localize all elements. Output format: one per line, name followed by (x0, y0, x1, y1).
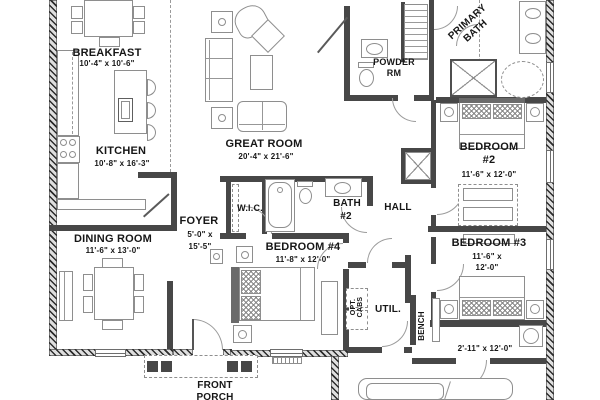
breakfast-table (84, 0, 133, 37)
util-door-arc (367, 238, 392, 263)
breakfast-chair (133, 6, 145, 19)
room-dims-breakfast: 10'-4" x 10'-6" (79, 60, 134, 68)
dining-table (94, 267, 134, 320)
sofa-back-line (209, 40, 210, 100)
room-dims-bedroom3-2: 12'-0" (476, 264, 499, 272)
wall-bed3-hall-upper (431, 237, 436, 264)
wall-pantry-right (171, 172, 177, 231)
breakfast-chair (99, 37, 120, 47)
wall-wic-left (226, 182, 231, 234)
label-bench: BENCH (418, 303, 426, 349)
bed4-dresser (321, 281, 338, 335)
kitchen-counter-lower (57, 163, 79, 199)
front-door-leaf (192, 319, 194, 350)
dining-chair (83, 274, 93, 291)
window-primary-bath (546, 62, 554, 93)
range-burner (69, 151, 76, 158)
primary-shower (450, 59, 497, 97)
pantry-angled-door (143, 193, 170, 217)
range-burner (69, 139, 76, 146)
end-table-lamp (218, 114, 226, 122)
foyer-console-lamp (213, 253, 220, 260)
breakfast-chair (71, 6, 83, 19)
bed4-corner-lamp (241, 251, 249, 259)
bed4-cover-line (300, 268, 301, 320)
dining-chair (134, 274, 144, 291)
bath2-toilet-tank (297, 181, 313, 187)
wall-bed4-top-right (272, 233, 349, 239)
bed4-lamp (238, 330, 247, 339)
bed2-pillow (462, 104, 491, 119)
window-bedroom4 (270, 349, 303, 357)
loveseat-cushion-line (262, 102, 263, 130)
room-label-bedroom2-2: #2 (483, 155, 496, 166)
bed2-cover-line (460, 134, 524, 135)
room-dims-bedroom4: 11'-8" x 12'-0" (276, 256, 331, 264)
room-label-powder-2: RM (387, 69, 401, 78)
linen-closet (405, 152, 431, 180)
powder-toilet-bowl (359, 69, 374, 87)
island-stool (147, 124, 156, 141)
bath2-toilet-bowl (299, 188, 312, 204)
wall-util-top-left (348, 262, 366, 268)
kitchen-counter-bottom (57, 199, 146, 210)
room-dims-foyer-1: 5'-0" x (187, 231, 212, 239)
breakfast-chair (71, 21, 83, 34)
wall-util-bottom-left (348, 347, 382, 353)
opt-cabs-line1: OPT. (350, 287, 357, 327)
wall-bath2-right-upper (367, 176, 373, 206)
bed3-pillow (462, 300, 491, 316)
hall-dims: 2'-11" x 12'-0" (458, 345, 513, 353)
ceiling-break-breakfast (170, 0, 171, 172)
util-garage-door-arc (382, 321, 408, 347)
wall-powder-bottom-right (414, 95, 429, 101)
room-label-bedroom4: BEDROOM #4 (266, 242, 341, 253)
bed3-lamp (530, 304, 540, 314)
water-heater (523, 328, 539, 344)
room-label-front-porch-1: FRONT (197, 381, 232, 391)
island-stool (147, 79, 156, 96)
wall-util-bottom-right (404, 347, 412, 353)
exterior-wall-right (546, 0, 554, 400)
exterior-wall-left (49, 0, 57, 356)
wall-bed2-bed3 (428, 226, 546, 232)
opt-cabs-line2: CABS (357, 287, 364, 327)
breakfast-chair (133, 21, 145, 34)
bed3-cover-line (460, 297, 524, 298)
wall-kitchen-dining (49, 225, 173, 231)
primary-sink (525, 33, 541, 44)
wall-bench-left (410, 295, 416, 345)
kitchen-counter-dash (72, 52, 73, 134)
dining-chair (83, 296, 93, 313)
dining-chair (102, 258, 123, 268)
dining-chair (102, 320, 123, 330)
kitchen-counter-left (57, 50, 79, 136)
room-label-kitchen: KITCHEN (96, 146, 146, 157)
label-opt-cabs: OPT. CABS (350, 287, 364, 327)
bed2-pillow (493, 104, 522, 119)
room-dims-bedroom2: 11'-6" x 12'-0" (462, 171, 517, 179)
window-bedroom3 (546, 239, 554, 270)
dining-chair (134, 296, 144, 313)
room-label-bath2-2: #2 (340, 212, 352, 222)
island-sink-basin (121, 101, 130, 119)
loveseat-back-line (239, 124, 285, 125)
room-label-great-room: GREAT ROOM (226, 139, 303, 150)
garage-car-cab (366, 383, 444, 400)
range-burner (60, 139, 67, 146)
room-dims-kitchen: 10'-8" x 16'-3" (94, 160, 149, 168)
exterior-wall-garage-left (331, 356, 339, 400)
room-label-bedroom2-1: BEDROOM (460, 142, 519, 153)
room-dims-great-room: 20'-4" x 21'-6" (238, 153, 293, 161)
room-label-wic: W.I.C. (237, 204, 263, 213)
porch-column (161, 361, 172, 372)
range-burner (60, 151, 67, 158)
room-label-foyer: FOYER (180, 216, 219, 227)
powder-door-arc (392, 98, 416, 122)
porch-column (227, 361, 238, 372)
room-label-powder-1: POWDER (373, 58, 415, 67)
primary-sink (525, 8, 541, 19)
bed4-pillow (241, 270, 261, 294)
wall-mudhall-garage-right (490, 358, 546, 364)
porch-column (147, 361, 158, 372)
island-stool (147, 102, 156, 119)
wall-powder-bottom-left (344, 95, 398, 101)
window-dining (95, 349, 126, 357)
wall-dining-right (167, 281, 173, 349)
room-label-breakfast: BREAKFAST (72, 48, 141, 59)
wall-bed2-hall-upper (431, 100, 436, 188)
bed3-lamp (444, 304, 454, 314)
bed2-dresser (463, 207, 513, 221)
coffee-table (250, 55, 273, 90)
front-step (272, 357, 302, 364)
room-dims-bedroom3-1: 11'-6" x (472, 253, 502, 261)
bed4-headboard (231, 267, 239, 323)
room-dims-foyer-2: 15'-5" (189, 243, 212, 251)
front-door-arc (193, 319, 223, 350)
room-label-dining: DINING ROOM (74, 234, 152, 245)
primary-closet-shelves (404, 4, 428, 60)
room-label-front-porch-2: PORCH (196, 393, 233, 400)
end-table-lamp (218, 18, 226, 26)
dining-buffet (59, 271, 73, 321)
bath2-tub-drain (277, 187, 283, 193)
wall-bed4-right-upper (343, 233, 349, 243)
room-dims-dining: 11'-6" x 13'-0" (86, 247, 141, 255)
powder-toilet-tank (358, 62, 374, 68)
bed4-pillow (241, 296, 261, 320)
dining-buffet-line (64, 272, 65, 320)
primary-tub (501, 61, 544, 98)
wall-mudhall-garage-left (412, 358, 456, 364)
wall-bed4-top-left (220, 233, 246, 239)
bed2-lamp (444, 107, 454, 117)
floor-plan: BREAKFAST 10'-4" x 10'-6" KITCHEN 10'-8"… (0, 0, 600, 400)
wall-util-top-right (392, 262, 405, 268)
bed2-headboard (459, 98, 525, 103)
bed3-pillow (493, 300, 522, 316)
porch-column (241, 361, 252, 372)
room-label-bedroom3: BEDROOM #3 (452, 238, 527, 249)
room-label-bath2-1: BATH (333, 199, 361, 209)
bench-seat (432, 298, 440, 342)
wall-linen-bottom (401, 180, 432, 184)
room-label-util: UTIL. (375, 305, 401, 315)
bed2-dresser (463, 188, 513, 201)
bath2-sink (334, 182, 351, 194)
window-bedroom2 (546, 150, 554, 183)
bed2-lamp (530, 107, 540, 117)
room-label-hall: HALL (384, 203, 411, 213)
powder-sink (366, 43, 383, 55)
